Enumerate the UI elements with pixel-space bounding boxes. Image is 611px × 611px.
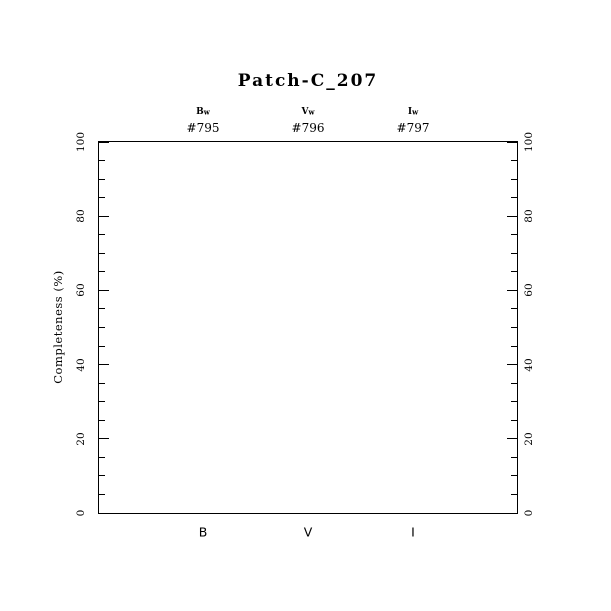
y-axis-minor-tick-left [99,457,105,458]
x-axis-band-label: B [199,525,208,540]
y-axis-minor-tick-left [99,401,105,402]
y-axis-title: Completeness (%) [51,270,65,383]
filter-base: B [196,107,204,117]
filter-label: Vw [301,107,314,117]
y-axis-major-tick-left [99,438,109,439]
y-tick-label-left: 60 [75,284,87,297]
filter-subscript: w [412,108,418,117]
frame-id-label: #797 [397,121,430,135]
y-axis-minor-tick-left [99,475,105,476]
y-axis-minor-tick-right [511,179,517,180]
filter-subscript: w [308,108,314,117]
y-tick-label-left: 0 [75,510,87,517]
y-axis-minor-tick-left [99,234,105,235]
y-axis-major-tick-left [99,364,109,365]
y-axis-major-tick-right [507,513,517,514]
plot-area [98,141,518,514]
y-axis-minor-tick-right [511,401,517,402]
y-axis-minor-tick-right [511,234,517,235]
y-axis-minor-tick-left [99,494,105,495]
frame-id-label: #795 [187,121,220,135]
y-axis-minor-tick-right [511,475,517,476]
filter-label: Bw [196,107,210,117]
y-axis-minor-tick-left [99,346,105,347]
frame-id-label: #796 [292,121,325,135]
y-tick-label-right: 100 [523,132,535,152]
filter-subscript: w [204,108,210,117]
y-axis-minor-tick-right [511,160,517,161]
plot-title: Patch-C_207 [238,71,378,91]
y-axis-major-tick-right [507,216,517,217]
y-tick-label-right: 60 [523,284,535,297]
y-axis-major-tick-left [99,142,109,143]
y-axis-minor-tick-right [511,271,517,272]
y-tick-label-right: 0 [523,510,535,517]
y-axis-minor-tick-left [99,179,105,180]
y-axis-minor-tick-right [511,383,517,384]
y-axis-minor-tick-right [511,253,517,254]
y-axis-minor-tick-left [99,308,105,309]
y-axis-major-tick-left [99,290,109,291]
filter-label: Iw [408,107,418,117]
y-axis-minor-tick-left [99,197,105,198]
y-axis-major-tick-right [507,438,517,439]
x-axis-band-label: I [411,525,415,540]
y-axis-minor-tick-right [511,346,517,347]
y-axis-minor-tick-right [511,308,517,309]
y-axis-major-tick-right [507,364,517,365]
y-axis-major-tick-right [507,142,517,143]
y-axis-minor-tick-right [511,457,517,458]
y-tick-label-right: 20 [523,432,535,445]
filter-base: V [301,107,308,117]
y-axis-minor-tick-right [511,420,517,421]
plot-canvas: Patch-C_207 Completeness (%) 00202040406… [0,0,611,611]
y-axis-major-tick-left [99,216,109,217]
y-tick-label-left: 80 [75,210,87,223]
y-tick-label-right: 40 [523,358,535,371]
y-axis-minor-tick-left [99,420,105,421]
y-axis-major-tick-right [507,290,517,291]
y-axis-minor-tick-left [99,383,105,384]
y-tick-label-left: 40 [75,358,87,371]
y-tick-label-left: 20 [75,432,87,445]
y-axis-minor-tick-right [511,197,517,198]
y-axis-minor-tick-left [99,271,105,272]
y-axis-minor-tick-right [511,327,517,328]
y-tick-label-left: 100 [75,132,87,152]
y-tick-label-right: 80 [523,210,535,223]
x-axis-band-label: V [304,525,313,540]
y-axis-minor-tick-left [99,253,105,254]
y-axis-minor-tick-left [99,160,105,161]
y-axis-major-tick-left [99,513,109,514]
y-axis-minor-tick-right [511,494,517,495]
y-axis-minor-tick-left [99,327,105,328]
